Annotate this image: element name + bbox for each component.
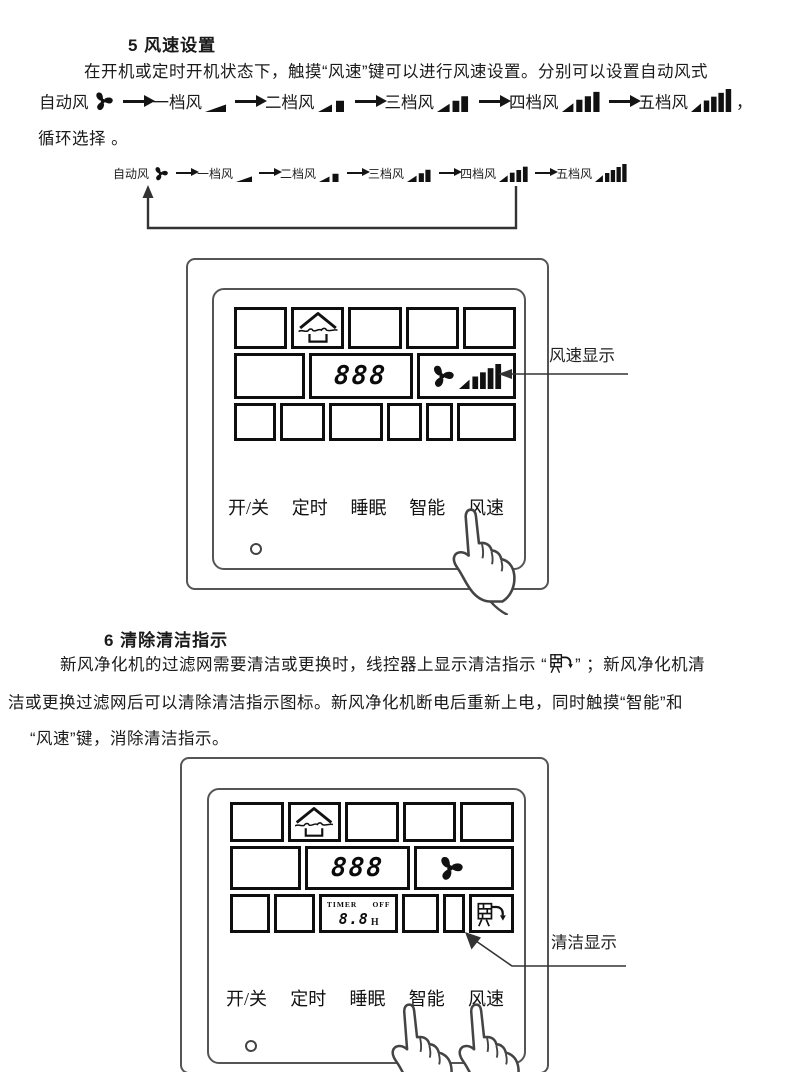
clean-filter-icon [476,899,506,929]
manual-page: 5 风速设置 在开机或定时开机状态下，触摸“风速”键可以进行风速设置。分别可以设… [0,0,790,1072]
speed-1-icon [236,173,252,182]
text: ” ；新风净化机清 [575,656,705,674]
lcd-cell [280,403,325,441]
seq-label-5: 五档风 [639,89,689,113]
lcd-cell [403,802,457,842]
fan-icon [430,364,454,388]
callout-arrow [498,366,630,382]
lcd-cell [463,307,516,349]
timer-label: TIMER [327,900,357,909]
fan-speed-sequence-text: 自动风 一档风 二档风 三档风 四档风 五档风 ， [38,85,754,117]
seq-label-4: 四档风 [509,89,559,113]
lcd-cell [402,894,439,933]
section5-heading: 5 风速设置 [128,31,216,56]
pointing-hand-icon [446,507,522,615]
lcd-cell [234,403,276,441]
speed-5-icon [691,89,733,112]
arrow-right-icon [176,172,191,175]
lcd-cell [329,403,383,441]
digit-display-cell: 888 [309,353,413,399]
speed-1-icon [205,100,226,112]
lcd-cell [426,403,453,441]
seq-label-auto: 自动风 [39,89,89,113]
lcd-cell [230,894,270,933]
speed-5-icon [595,164,628,182]
arrow-right-icon [259,172,274,175]
clean-filter-icon [549,651,573,675]
arrow-right-icon [479,100,501,103]
lcd-cell [274,894,315,933]
speed-3-icon [407,168,432,182]
lcd-cell [406,307,459,349]
section6-paragraph-line3: “风速”键，消除清洁指示。 [30,725,229,749]
timer-unit: H [371,917,379,928]
speed-4-icon [562,91,600,112]
section5-paragraph-line2: 循环选择 。 [38,125,128,149]
timer-button-label: 定时 [292,494,328,520]
seq-label-2: 二档风 [280,165,316,182]
timer-cell: TIMER OFF 8.8 H [319,894,399,933]
lcd-cell [460,802,514,842]
speed-4-icon [499,166,528,182]
timer-off-label: OFF [372,900,390,909]
pointing-hand-icon [385,1002,459,1072]
lcd-cell [457,403,516,441]
lcd-cell [348,307,401,349]
lcd-cell [345,802,399,842]
indicator-led [245,1040,257,1052]
fan-cell [414,846,514,890]
fan-speed-cycle-diagram: 自动风 一档风 二档风 三档风 四档风 五档风 [112,161,630,185]
arrow-right-icon [535,172,550,175]
lcd-cell [387,403,422,441]
segment-display: 888 [333,361,388,391]
timer-button-label: 定时 [290,985,326,1011]
seq-label-1: 一档风 [197,165,233,182]
arrow-right-icon [439,172,454,175]
pointing-hand-icon [452,1002,526,1072]
seq-label-5: 五档风 [556,165,592,182]
speed-bars-icon [459,364,503,389]
cycle-loop-arrow [136,184,528,234]
section6-paragraph-line2: 洁或更换过滤网后可以清除清洁指示图标。新风净化机断电后重新上电，同时触摸“智能”… [8,689,683,713]
house-leaf-icon [298,311,338,345]
lcd-cell [230,846,301,890]
home-fresh-air-cell [288,802,342,842]
auto-fan-icon [153,166,168,181]
speed-2-icon [318,97,346,112]
seq-label-auto: 自动风 [113,165,149,182]
seq-label-3: 三档风 [385,89,435,113]
speed-2-icon [319,171,340,182]
power-button-label: 开/关 [226,985,267,1011]
arrow-right-icon [235,100,257,103]
lcd-display: 888 TIMER OFF 8.8 H [230,802,514,933]
segment-display: 888 [330,853,385,883]
sleep-button-label: 睡眠 [349,985,385,1011]
section6-heading: 6 清除清洁指示 [104,626,228,651]
smart-button-label: 智能 [409,494,445,520]
arrow-right-icon [609,100,631,103]
timer-value: 8.8 [339,910,369,928]
fan-icon [437,855,463,881]
callout-arrow [460,928,630,972]
seq-label-2: 二档风 [265,89,315,113]
section5-paragraph-line1: 在开机或定时开机状态下，触摸“风速”键可以进行风速设置。分别可以设置自动风式 [84,58,708,82]
section6-paragraph-line1: 新风净化机的过滤网需要清洁或更换时，线控器上显示清洁指示 “” ；新风净化机清 [60,651,705,675]
seq-label-1: 一档风 [153,89,203,113]
seq-label-4: 四档风 [460,165,496,182]
lcd-cell [234,307,287,349]
home-fresh-air-cell [291,307,344,349]
digit-display-cell: 888 [305,846,410,890]
house-leaf-icon [294,806,334,839]
arrow-right-icon [355,100,377,103]
lcd-cell [230,802,284,842]
auto-fan-icon [93,91,113,111]
indicator-led [250,543,262,555]
speed-3-icon [437,94,470,112]
comma: ， [736,89,753,113]
power-button-label: 开/关 [228,494,269,520]
arrow-right-icon [347,172,362,175]
sleep-button-label: 睡眠 [350,494,386,520]
lcd-cell [234,353,305,399]
seq-label-3: 三档风 [368,165,404,182]
text: 新风净化机的过滤网需要清洁或更换时，线控器上显示清洁指示 “ [60,656,547,674]
speed-display-callout: 风速显示 [549,342,615,366]
arrow-right-icon [123,100,145,103]
lcd-display: 888 [234,307,516,441]
